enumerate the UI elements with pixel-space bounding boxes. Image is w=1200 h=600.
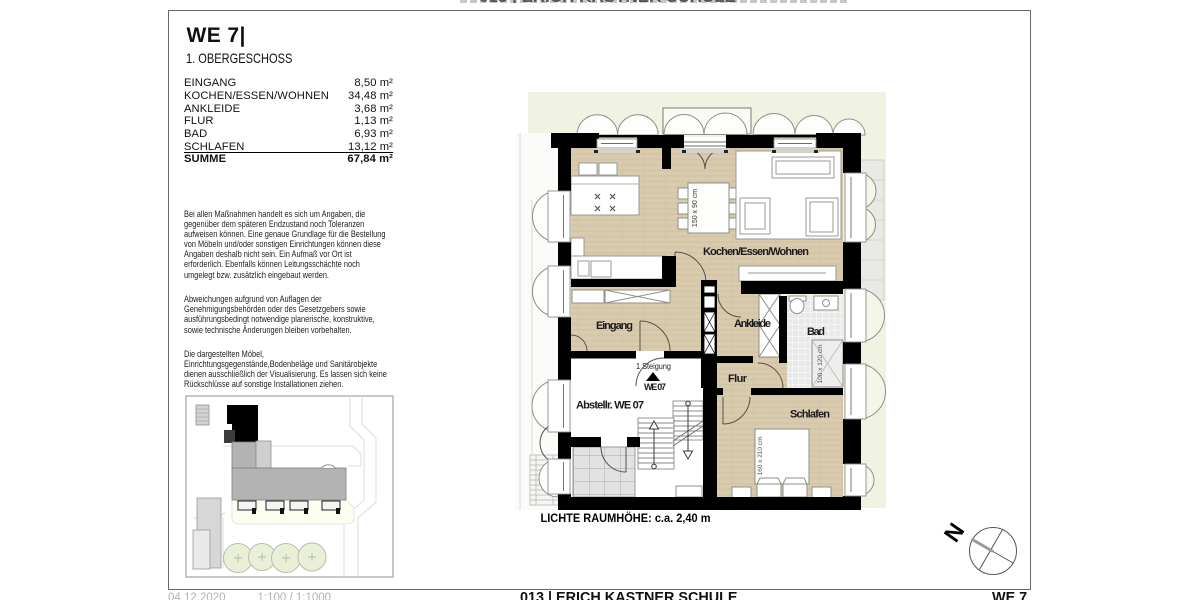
svg-text:LICHTE RAUMHÖHE: c.a. 2,40 m: LICHTE RAUMHÖHE: c.a. 2,40 m xyxy=(541,512,711,525)
svg-text:Flur: Flur xyxy=(728,373,748,385)
svg-text:160 x 210 cm: 160 x 210 cm xyxy=(757,436,764,475)
svg-text:Kochen/Essen/Wohnen: Kochen/Essen/Wohnen xyxy=(703,246,809,258)
svg-text:1 Steigung: 1 Steigung xyxy=(636,361,671,371)
svg-text:Schlafen: Schlafen xyxy=(790,409,830,421)
svg-text:150 x 90 cm: 150 x 90 cm xyxy=(692,189,699,227)
svg-text:Abstellr. WE 07: Abstellr. WE 07 xyxy=(576,400,644,412)
svg-text:N: N xyxy=(939,518,970,547)
svg-text:Ankleide: Ankleide xyxy=(734,318,771,330)
svg-text:Bad: Bad xyxy=(807,326,825,338)
svg-text:100 x 120 cm: 100 x 120 cm xyxy=(817,344,824,383)
svg-text:WE 07: WE 07 xyxy=(644,382,666,392)
svg-text:Eingang: Eingang xyxy=(596,320,633,332)
